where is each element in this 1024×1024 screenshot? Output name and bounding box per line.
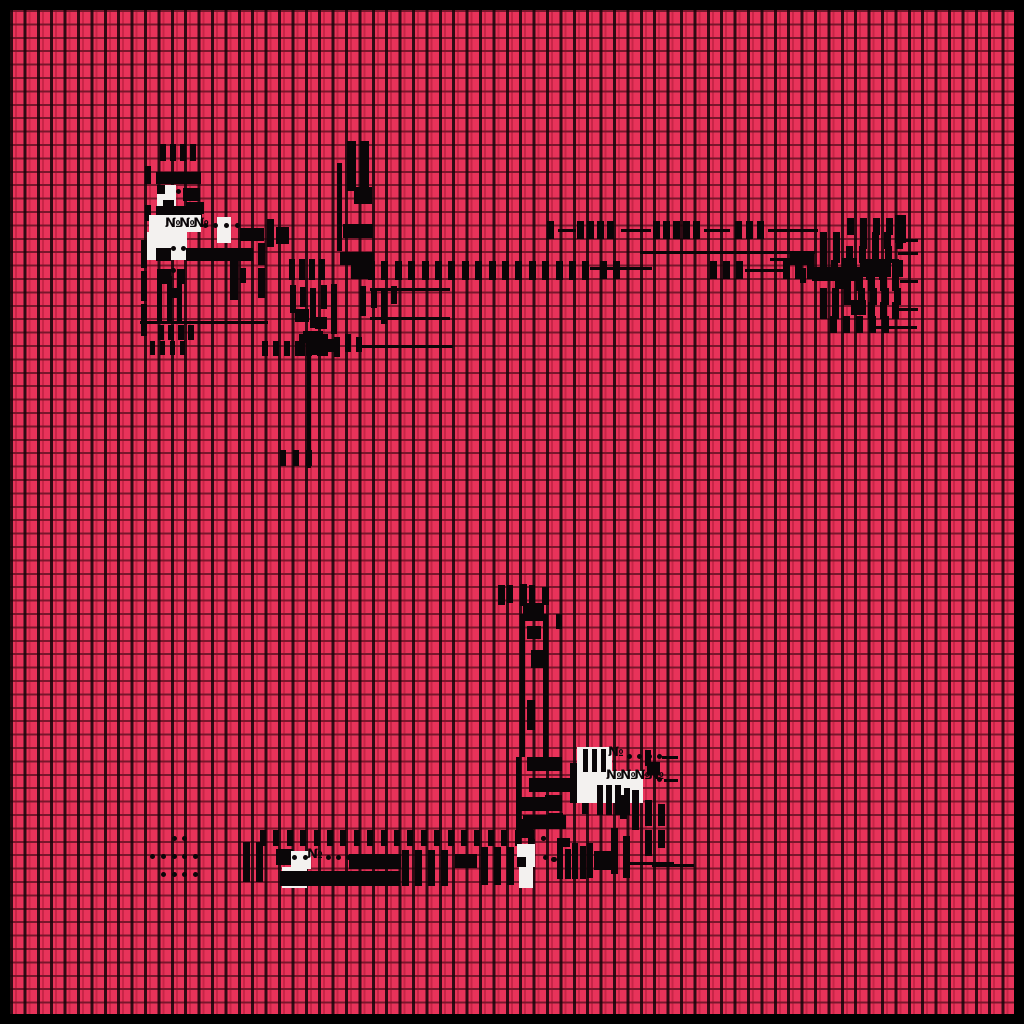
map-glyph-block xyxy=(186,248,253,261)
map-glyph-vbar xyxy=(240,268,246,283)
map-glyph-vbar xyxy=(515,261,522,280)
map-glyph-line xyxy=(745,269,783,272)
map-glyph-vbar xyxy=(847,218,854,235)
map-glyph-vline xyxy=(520,614,525,757)
map-glyph-vbar xyxy=(653,221,660,239)
map-glyph-block xyxy=(183,188,200,201)
map-glyph-block xyxy=(594,851,611,870)
map-glyph-vbar xyxy=(280,450,286,466)
map-glyph-block xyxy=(548,813,563,828)
map-glyph-vbar xyxy=(180,144,186,161)
map-glyph-dot xyxy=(161,854,166,859)
map-glyph-vbar xyxy=(289,259,295,280)
map-glyph-dot xyxy=(171,246,176,251)
map-glyph-vbar xyxy=(319,259,325,280)
map-glyph-vbar xyxy=(273,341,279,356)
map-glyph-vbar xyxy=(258,268,265,298)
map-glyph-line xyxy=(875,326,917,329)
map-glyph-line xyxy=(768,229,818,232)
map-glyph-vbar xyxy=(856,316,863,333)
map-glyph-vbar xyxy=(230,261,238,300)
map-glyph-vbar xyxy=(592,749,597,772)
map-glyph-vbar xyxy=(331,284,337,334)
map-glyph-dot xyxy=(172,836,177,841)
map-glyph-block xyxy=(295,309,309,322)
map-glyph-dot xyxy=(161,872,166,877)
map-glyph-vbar xyxy=(843,316,850,333)
map-glyph-block xyxy=(523,603,544,621)
map-glyph-vbar xyxy=(606,785,612,815)
map-glyph-vbar xyxy=(267,219,274,247)
map-glyph-block xyxy=(842,258,857,273)
map-glyph-hbar xyxy=(343,224,373,238)
map-glyph-vbar xyxy=(489,261,496,280)
map-glyph-vbar xyxy=(658,804,665,826)
map-glyph-block xyxy=(517,797,548,811)
map-glyph-vbar xyxy=(273,830,279,846)
map-glyph-line xyxy=(630,862,674,865)
map-glyph-vbar xyxy=(295,341,301,356)
map-glyph-vbar xyxy=(746,221,753,239)
map-glyph-hbar xyxy=(156,172,201,184)
map-glyph-vbar xyxy=(345,334,351,352)
map-glyph-line xyxy=(140,321,268,324)
map-glyph-dot xyxy=(637,754,642,759)
map-glyph-vbar xyxy=(448,261,455,280)
map-glyph-line xyxy=(640,251,815,254)
map-glyph-block xyxy=(516,819,533,838)
map-label-numero: № xyxy=(608,746,622,759)
map-glyph-dot xyxy=(182,872,187,877)
map-glyph-vbar xyxy=(321,285,327,309)
map-glyph-vbar xyxy=(607,221,614,239)
map-glyph-dot xyxy=(657,777,662,782)
map-glyph-dot xyxy=(193,854,198,859)
map-glyph-vbar xyxy=(632,790,639,830)
map-glyph-dot xyxy=(543,855,548,860)
map-glyph-vbar xyxy=(645,800,652,826)
map-glyph-vbar xyxy=(381,830,387,846)
map-glyph-line xyxy=(558,229,576,232)
map-glyph-vbar xyxy=(448,830,454,846)
map-glyph-vbar xyxy=(611,828,618,874)
map-glyph-line xyxy=(662,756,678,759)
map-glyph-vbar xyxy=(623,836,630,878)
map-glyph-vbar xyxy=(160,341,165,355)
map-glyph-vbar xyxy=(422,261,429,280)
map-glyph-vbar xyxy=(300,287,306,307)
map-glyph-dot xyxy=(182,836,187,841)
map-glyph-vbar xyxy=(243,842,250,882)
map-glyph-block xyxy=(354,187,372,204)
map-glyph-line xyxy=(898,252,918,255)
map-glyph-vbar xyxy=(293,450,299,466)
map-glyph-vbar xyxy=(710,261,717,279)
map-glyph-vbar xyxy=(157,276,162,323)
map-glyph-vbar xyxy=(435,261,442,280)
map-glyph-dot xyxy=(552,857,557,862)
map-glyph-block xyxy=(455,854,477,868)
map-glyph-vbar xyxy=(421,830,427,846)
map-glyph-vbar xyxy=(583,749,588,772)
map-glyph-dot xyxy=(224,223,229,228)
map-glyph-line xyxy=(770,258,792,261)
map-glyph-vbar xyxy=(488,830,494,846)
map-glyph-line xyxy=(664,779,678,782)
map-glyph-vbar xyxy=(736,261,743,279)
map-glyph-vbar xyxy=(800,268,806,283)
map-glyph-vbar xyxy=(498,585,505,605)
map-glyph-dot xyxy=(530,838,535,843)
map-glyph-block xyxy=(647,762,660,775)
map-glyph-vbar xyxy=(582,261,589,280)
map-glyph-vbar xyxy=(547,221,554,239)
map-glyph-vbar xyxy=(507,847,514,885)
map-glyph-vbar xyxy=(371,288,377,308)
map-glyph-block xyxy=(851,300,866,315)
map-glyph-hbar xyxy=(527,757,562,771)
map-glyph-vbar xyxy=(407,830,413,846)
map-glyph-dot xyxy=(213,223,218,228)
map-glyph-vbar xyxy=(170,341,175,355)
map-glyph-vbar xyxy=(663,221,670,239)
map-glyph-vbar xyxy=(529,261,536,280)
map-glyph-vbar xyxy=(658,830,665,848)
map-glyph-block xyxy=(157,185,165,194)
map-glyph-dot xyxy=(171,268,176,273)
map-label-numero: №№№ xyxy=(165,217,207,230)
map-glyph-vbar xyxy=(177,276,182,323)
map-glyph-vbar xyxy=(141,271,147,301)
map-glyph-vbar xyxy=(160,144,166,161)
map-glyph-vbar xyxy=(347,141,356,191)
map-glyph-vbar xyxy=(882,316,889,333)
map-glyph-vbar xyxy=(188,325,194,340)
map-glyph-vbar xyxy=(368,261,375,280)
map-glyph-block xyxy=(280,871,400,886)
map-glyph-vbar xyxy=(434,830,440,846)
map-glyph-vbar xyxy=(673,221,680,239)
map-glyph-dot xyxy=(172,872,177,877)
map-glyph-block xyxy=(156,248,171,261)
map-glyph-block xyxy=(315,317,327,329)
map-glyph-line xyxy=(358,345,453,348)
map-glyph-vbar xyxy=(262,341,268,356)
map-glyph-vbar xyxy=(340,830,346,846)
map-glyph-vbar xyxy=(683,221,690,239)
map-glyph-vbar xyxy=(394,830,400,846)
map-glyph-vbar xyxy=(334,337,340,357)
map-glyph-vbar xyxy=(565,849,571,879)
map-glyph-dot xyxy=(150,854,155,859)
map-glyph-dot xyxy=(326,855,331,860)
map-glyph-vbar xyxy=(167,276,172,323)
map-glyph-vbar xyxy=(462,261,469,280)
map-label-numero: № xyxy=(307,848,321,861)
map-glyph-vbar xyxy=(587,843,593,878)
map-glyph-line xyxy=(704,229,730,232)
map-glyph-vbar xyxy=(367,830,373,846)
map-glyph-line xyxy=(370,317,450,320)
map-glyph-vbar xyxy=(150,341,155,355)
map-glyph-vbar xyxy=(556,261,563,280)
map-glyph-vbar xyxy=(557,847,563,879)
map-glyph-vbar xyxy=(556,614,562,629)
map-glyph-vbar xyxy=(327,830,333,846)
map-glyph-vbar xyxy=(145,166,151,184)
map-glyph-vbar xyxy=(170,144,176,161)
map-glyph-vbar xyxy=(284,341,290,356)
map-glyph-vbar xyxy=(645,830,652,856)
map-glyph-block xyxy=(169,288,181,298)
map-glyph-vbar xyxy=(587,221,594,239)
map-glyph-vbar xyxy=(381,261,388,280)
map-glyph-vbar xyxy=(287,830,293,846)
map-glyph-vbar xyxy=(314,830,320,846)
map-glyph-vbar xyxy=(441,850,448,886)
map-glyph-vline xyxy=(337,163,342,251)
map-glyph-dot xyxy=(172,854,177,859)
map-glyph-vbar xyxy=(869,316,876,333)
map-glyph-vbar xyxy=(597,785,603,815)
map-glyph-dot xyxy=(203,223,208,228)
map-glyph-vbar xyxy=(830,316,837,333)
map-glyph-dot xyxy=(193,872,198,877)
map-glyph-vbar xyxy=(693,221,700,239)
map-glyph-vbar xyxy=(735,221,742,239)
map-glyph-vbar xyxy=(475,261,482,280)
map-glyph-dot xyxy=(292,855,297,860)
map-glyph-vbar xyxy=(527,700,535,730)
map-glyph-dot xyxy=(627,754,632,759)
map-glyph-vbar xyxy=(529,585,535,603)
map-glyph-hbar xyxy=(349,854,401,869)
map-glyph-vbar xyxy=(300,830,306,846)
map-glyph-vbar xyxy=(141,240,147,268)
map-glyph-white xyxy=(519,866,533,888)
map-glyph-vbar xyxy=(620,795,627,819)
map-glyph-line xyxy=(900,280,918,283)
map-glyph-vline xyxy=(543,614,548,757)
map-glyph-vbar xyxy=(402,850,409,886)
map-glyph-block xyxy=(527,626,541,639)
map-glyph-block xyxy=(531,650,544,668)
map-glyph-vbar xyxy=(580,846,586,879)
map-glyph-block xyxy=(517,857,526,867)
map-glyph-vbar xyxy=(820,260,827,277)
map-glyph-vbar xyxy=(597,221,604,239)
map-glyph-vbar xyxy=(306,341,312,356)
map-glyph-vbar xyxy=(481,847,488,885)
map-glyph-white xyxy=(217,217,231,243)
map-glyph-vbar xyxy=(141,304,147,336)
map-glyph-vbar xyxy=(501,830,507,846)
map-glyph-line xyxy=(900,239,918,242)
map-glyph-vbar xyxy=(572,843,578,879)
map-glyph-dot xyxy=(541,836,546,841)
map-glyph-vbar xyxy=(569,261,576,280)
map-glyph-dot xyxy=(176,189,181,194)
map-glyph-vbar xyxy=(317,341,323,356)
map-glyph-vbar xyxy=(178,325,184,340)
map-glyph-line xyxy=(621,229,651,232)
map-glyph-vbar xyxy=(180,341,185,355)
map-glyph-vbar xyxy=(258,243,265,265)
map-glyph-vbar xyxy=(408,261,415,280)
map-glyph-vbar xyxy=(820,302,827,319)
map-glyph-vbar xyxy=(190,144,196,161)
map-glyph-vbar xyxy=(415,850,422,886)
map-glyph-vbar xyxy=(502,261,509,280)
map-glyph-vbar xyxy=(299,259,305,280)
map-glyph-vbar xyxy=(360,286,366,316)
map-glyph-vbar xyxy=(158,325,164,340)
map-glyph-line xyxy=(370,288,450,291)
map-glyph-vbar xyxy=(757,221,764,239)
map-glyph-vbar xyxy=(306,450,312,466)
map-glyph-vbar xyxy=(577,221,584,239)
map-glyph-vbar xyxy=(474,830,480,846)
game-window-frame: №№№№№№№№№ xyxy=(0,0,1024,1024)
map-glyph-vbar xyxy=(428,850,435,886)
map-glyph-vbar xyxy=(309,259,315,280)
map-glyph-vbar xyxy=(844,288,851,305)
map-glyph-vbar xyxy=(461,830,467,846)
map-glyph-line xyxy=(898,308,918,311)
game-map[interactable]: №№№№№№№№№ xyxy=(10,10,1014,1014)
map-glyph-block xyxy=(276,227,289,244)
map-glyph-vbar xyxy=(395,261,402,280)
map-glyph-block xyxy=(545,795,562,811)
map-glyph-vbar xyxy=(600,261,607,279)
map-glyph-vbar xyxy=(494,847,501,885)
map-glyph-vbar xyxy=(723,261,730,279)
map-glyph-block xyxy=(835,272,851,289)
map-glyph-vbar xyxy=(354,830,360,846)
map-glyph-block xyxy=(557,838,570,847)
map-glyph-vbar xyxy=(256,842,263,882)
map-glyph-vbar xyxy=(360,141,369,191)
map-glyph-hbar xyxy=(790,252,814,265)
map-glyph-vbar xyxy=(783,261,790,279)
map-glyph-hbar xyxy=(240,228,264,241)
map-glyph-vbar xyxy=(507,585,513,603)
map-glyph-dot xyxy=(182,854,187,859)
map-glyph-hbar xyxy=(529,778,570,792)
map-glyph-vbar xyxy=(613,261,620,279)
map-glyph-dot xyxy=(336,855,341,860)
map-glyph-vbar xyxy=(168,325,174,340)
map-glyph-vbar xyxy=(542,261,549,280)
